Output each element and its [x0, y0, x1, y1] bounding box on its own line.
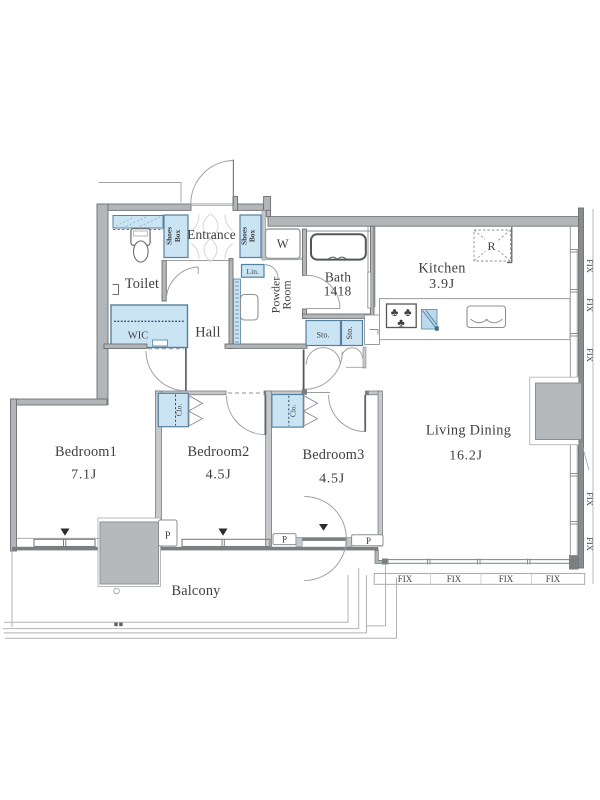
svg-text:16.2J: 16.2J [449, 449, 482, 464]
svg-text:WIC: WIC [128, 331, 148, 342]
svg-text:W: W [277, 237, 289, 251]
svg-text:P: P [366, 536, 371, 546]
svg-text:Bath: Bath [325, 270, 351, 285]
svg-text:Toilet: Toilet [125, 276, 159, 292]
svg-text:4.5J: 4.5J [206, 468, 232, 483]
svg-text:R: R [487, 239, 495, 253]
svg-text:Room: Room [280, 280, 294, 310]
svg-text:FIX: FIX [499, 574, 514, 584]
svg-text:Box: Box [248, 230, 257, 243]
svg-text:Bedroom1: Bedroom1 [55, 444, 117, 460]
svg-text:FIX: FIX [546, 574, 561, 584]
svg-text:Sto.: Sto. [345, 327, 354, 340]
svg-text:Living Dining: Living Dining [426, 423, 511, 439]
svg-text:Entrance: Entrance [187, 227, 236, 242]
svg-text:FIX: FIX [585, 259, 595, 273]
svg-text:Sto.: Sto. [317, 331, 330, 340]
svg-text:Clo.: Clo. [289, 404, 298, 417]
svg-text:♣: ♣ [397, 318, 405, 330]
svg-text:7.1J: 7.1J [71, 468, 97, 483]
svg-text:FIX: FIX [585, 537, 595, 551]
svg-text:FIX: FIX [585, 298, 595, 312]
svg-text:FIX: FIX [398, 574, 413, 584]
svg-text:FIX: FIX [585, 348, 595, 362]
svg-text:FIX: FIX [447, 574, 462, 584]
svg-text:Balcony: Balcony [171, 583, 221, 599]
svg-text:Clo.: Clo. [175, 404, 184, 417]
svg-text:Hall: Hall [195, 325, 220, 341]
svg-text:♣: ♣ [404, 307, 412, 319]
svg-text:4.5J: 4.5J [319, 472, 345, 487]
svg-text:1418: 1418 [324, 284, 352, 299]
svg-text:Bedroom3: Bedroom3 [303, 447, 365, 463]
svg-text:FIX: FIX [585, 492, 595, 506]
svg-text:3.9J: 3.9J [429, 277, 455, 292]
svg-text:P: P [282, 535, 287, 545]
svg-text:Bedroom2: Bedroom2 [188, 444, 250, 460]
svg-text:P: P [165, 531, 171, 542]
svg-text:Box: Box [173, 230, 182, 243]
svg-text:Kitchen: Kitchen [418, 261, 465, 277]
svg-text:Lin.: Lin. [247, 267, 259, 276]
